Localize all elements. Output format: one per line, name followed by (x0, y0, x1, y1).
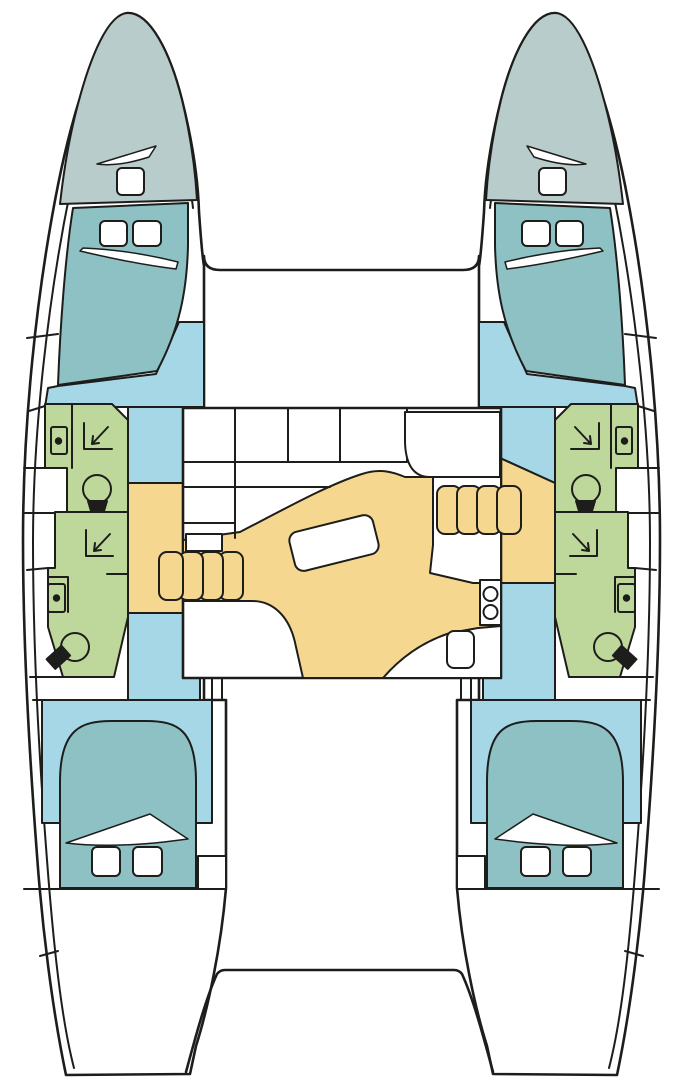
stair-enclosure (186, 534, 222, 551)
chart-area (405, 412, 500, 477)
starboard-stairs (437, 486, 521, 534)
galley-sink (447, 631, 474, 668)
stove-burner-icon (484, 605, 498, 619)
catamaran-deck-plan (0, 0, 683, 1080)
port-stairs (159, 552, 243, 600)
port-corridor-forward (128, 407, 183, 483)
cockpit-outline (186, 970, 493, 1072)
stove-burner-icon (484, 587, 498, 601)
cockpit-bulkhead-lines (212, 678, 471, 700)
stair-step (159, 552, 183, 600)
foredeck-crossbeam (204, 256, 479, 270)
stair-step (497, 486, 521, 534)
